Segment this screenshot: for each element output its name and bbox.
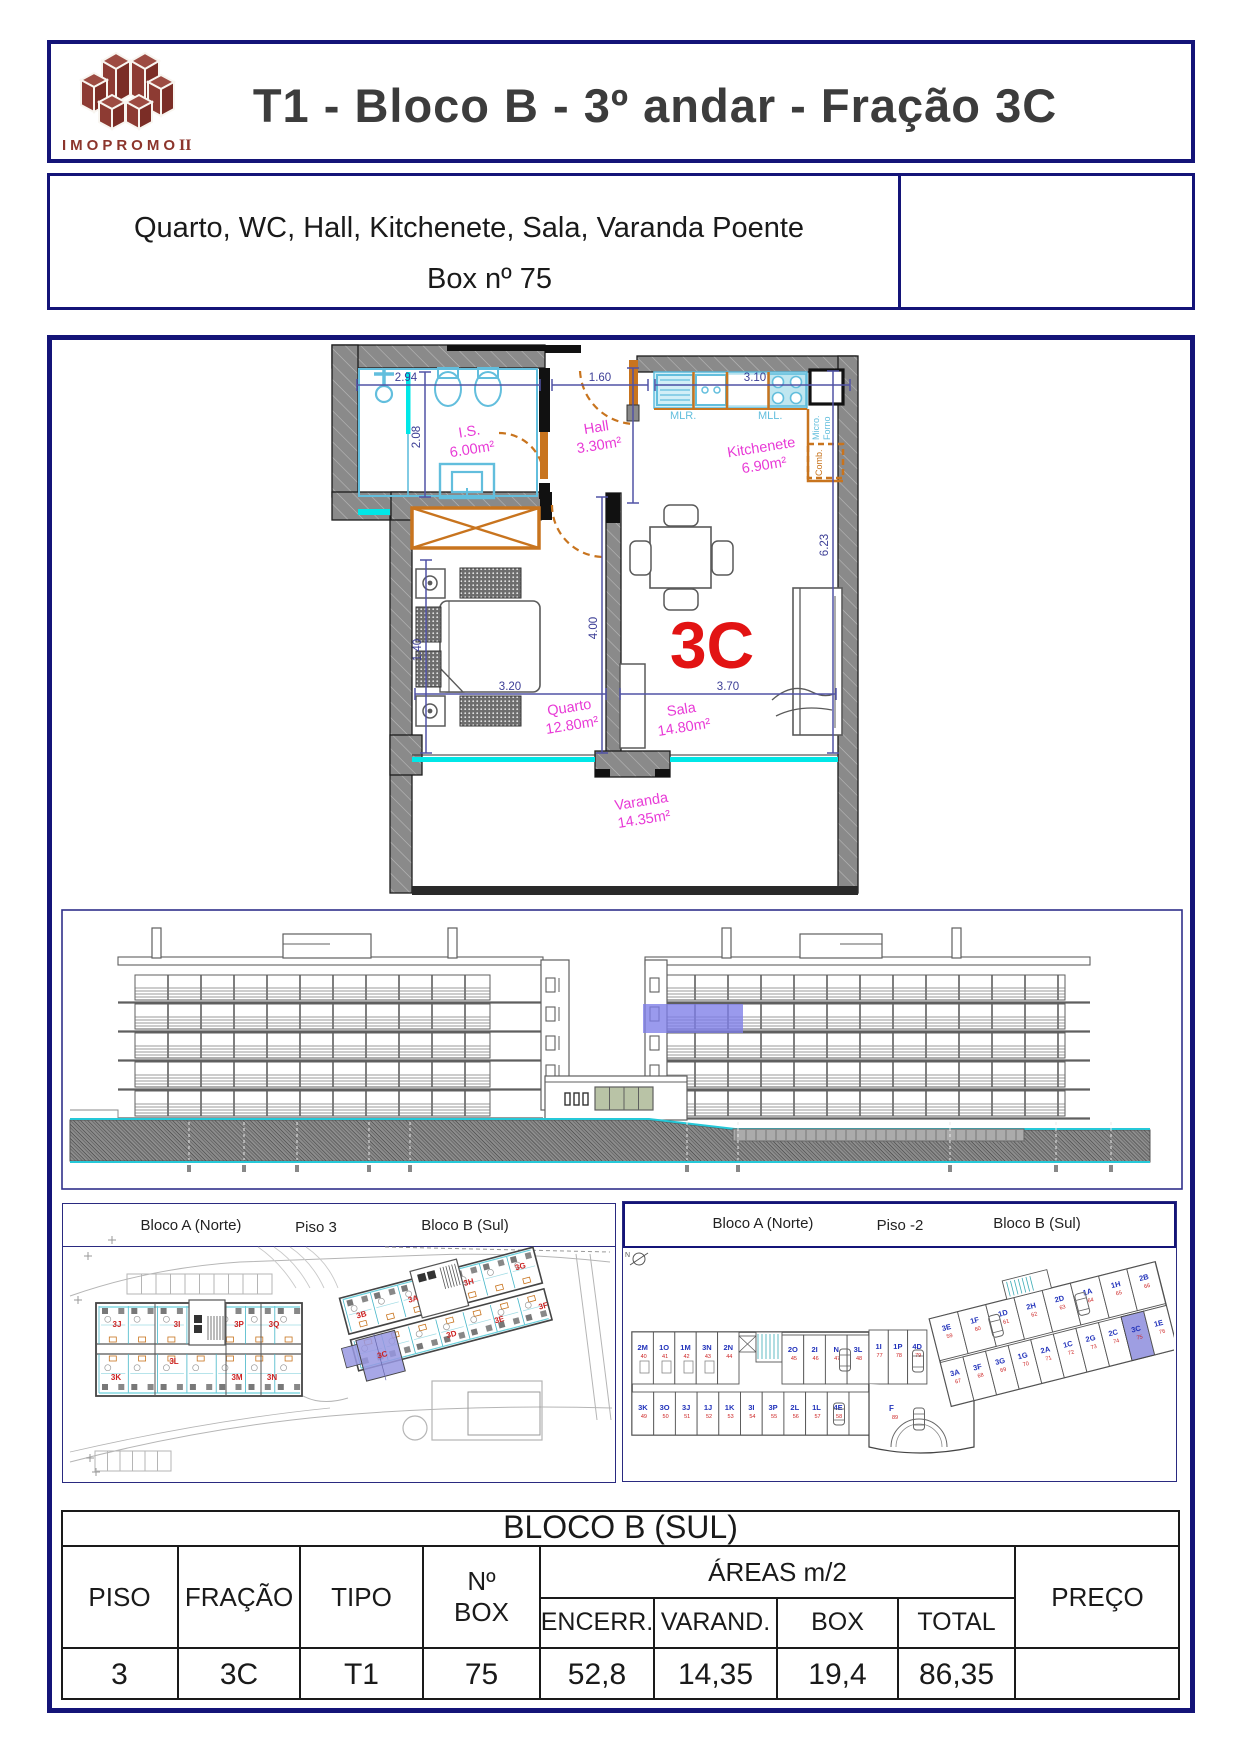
svg-text:3.20: 3.20 [499,681,521,693]
svg-text:1I: 1I [875,1342,881,1351]
svg-text:44: 44 [726,1354,732,1360]
svg-text:3.70: 3.70 [717,681,739,693]
svg-text:3Q: 3Q [269,1320,280,1329]
svg-text:78: 78 [896,1353,902,1359]
svg-text:48: 48 [856,1356,862,1362]
svg-text:45: 45 [791,1356,797,1362]
svg-text:Sala: Sala [666,700,698,720]
svg-text:51: 51 [684,1414,690,1420]
svg-text:58: 58 [836,1414,842,1420]
svg-text:3K: 3K [111,1373,121,1382]
svg-text:1O: 1O [659,1343,669,1352]
svg-text:49: 49 [641,1414,647,1420]
svg-text:N: N [833,1345,838,1354]
svg-text:2O: 2O [788,1345,798,1354]
svg-text:1.60: 1.60 [589,372,611,384]
svg-text:2L: 2L [790,1403,799,1412]
svg-text:3I: 3I [174,1320,181,1329]
svg-text:50: 50 [663,1414,669,1420]
svg-text:MLR.: MLR. [670,410,696,422]
svg-text:42: 42 [683,1354,689,1360]
svg-text:46: 46 [813,1356,819,1362]
svg-text:56: 56 [793,1414,799,1420]
svg-text:Comb.: Comb. [814,449,824,476]
svg-text:4.00: 4.00 [588,617,600,639]
svg-text:3N: 3N [702,1343,712,1352]
svg-text:6.00m²: 6.00m² [449,438,496,461]
svg-text:3O: 3O [660,1403,670,1412]
svg-text:3L: 3L [854,1345,863,1354]
svg-text:2.94: 2.94 [395,372,418,384]
svg-text:3.10: 3.10 [744,372,766,384]
svg-text:3N: 3N [267,1373,277,1382]
svg-text:2I: 2I [811,1345,817,1354]
svg-text:3P: 3P [234,1320,244,1329]
svg-text:43: 43 [705,1354,711,1360]
svg-text:N: N [625,1252,630,1259]
svg-text:Micro.: Micro. [811,416,821,441]
svg-text:Forno: Forno [822,416,832,440]
svg-text:1.40: 1.40 [412,639,424,661]
svg-text:I.S.: I.S. [457,422,481,441]
svg-text:II: II [179,137,191,154]
svg-text:57: 57 [814,1414,820,1420]
svg-text:3M: 3M [231,1373,242,1382]
svg-text:F: F [889,1404,894,1413]
svg-text:2.08: 2.08 [411,426,423,448]
svg-text:14.80m²: 14.80m² [657,716,712,740]
svg-text:3L: 3L [169,1357,178,1366]
svg-text:1P: 1P [893,1342,902,1351]
svg-text:54: 54 [749,1414,755,1420]
svg-text:3J: 3J [682,1403,690,1412]
svg-text:55: 55 [771,1414,777,1420]
svg-text:6.23: 6.23 [819,534,831,556]
svg-text:3C: 3C [670,608,754,682]
svg-text:89: 89 [892,1415,898,1421]
svg-text:1L: 1L [812,1403,821,1412]
svg-text:53: 53 [728,1414,734,1420]
svg-text:41: 41 [662,1354,668,1360]
svg-text:MLL.: MLL. [758,410,782,422]
svg-text:77: 77 [877,1353,883,1359]
svg-text:3.30m²: 3.30m² [576,434,623,457]
svg-text:1J: 1J [704,1403,712,1412]
svg-text:Hall: Hall [583,418,610,438]
svg-text:1K: 1K [725,1403,735,1412]
svg-text:1M: 1M [680,1343,690,1352]
svg-text:3P: 3P [769,1403,778,1412]
svg-text:3J: 3J [113,1320,122,1329]
svg-text:40: 40 [641,1354,647,1360]
svg-text:3I: 3I [748,1403,754,1412]
svg-text:IMOPROMO: IMOPROMO [62,137,179,154]
svg-text:52: 52 [706,1414,712,1420]
svg-text:2M: 2M [637,1343,647,1352]
svg-text:2N: 2N [724,1343,734,1352]
svg-text:4E: 4E [834,1403,843,1412]
svg-text:3K: 3K [638,1403,648,1412]
